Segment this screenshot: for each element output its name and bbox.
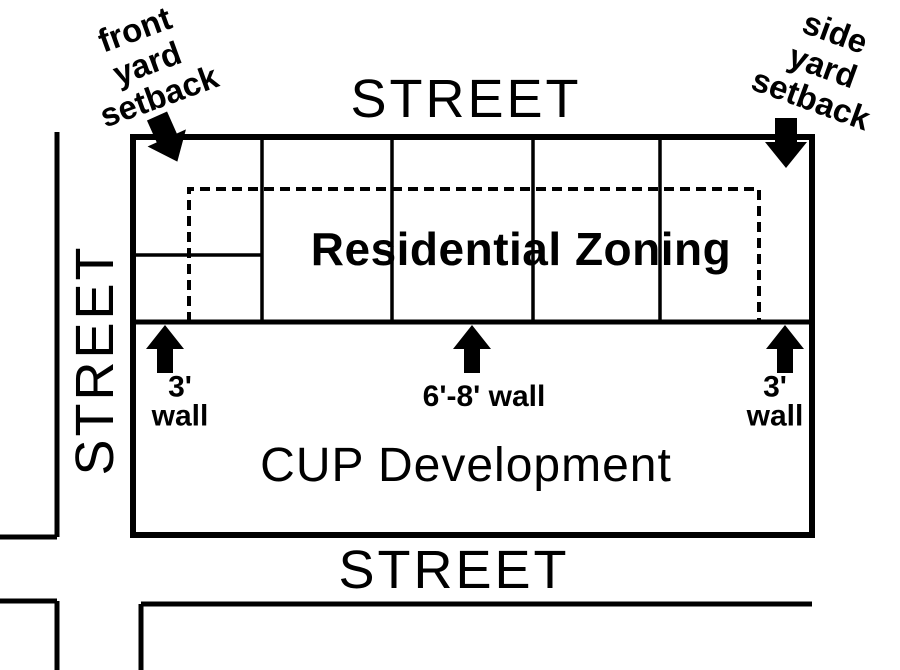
street-label-bottom: STREET [338,543,569,597]
wall-right-height: 3' [747,374,804,403]
wall-right-word: wall [747,402,804,431]
wall-label-left: 3' wall [152,374,209,431]
residential-zoning-label: Residential Zoning [311,226,731,272]
zoning-diagram: STREET STREET STREET Residential Zoning … [0,0,900,670]
wall-arrow-left-icon [146,325,184,373]
wall-left-height: 3' [152,374,209,403]
wall-label-center: 6'-8' wall [423,383,546,412]
wall-arrow-right-icon [766,325,804,373]
wall-left-word: wall [152,402,209,431]
side-setback-arrow-icon [765,118,807,168]
wall-arrow-center-icon [453,325,491,373]
street-label-top: STREET [350,72,581,126]
wall-label-right: 3' wall [747,374,804,431]
cup-development-label: CUP Development [260,442,672,490]
street-label-left: STREET [68,244,122,475]
